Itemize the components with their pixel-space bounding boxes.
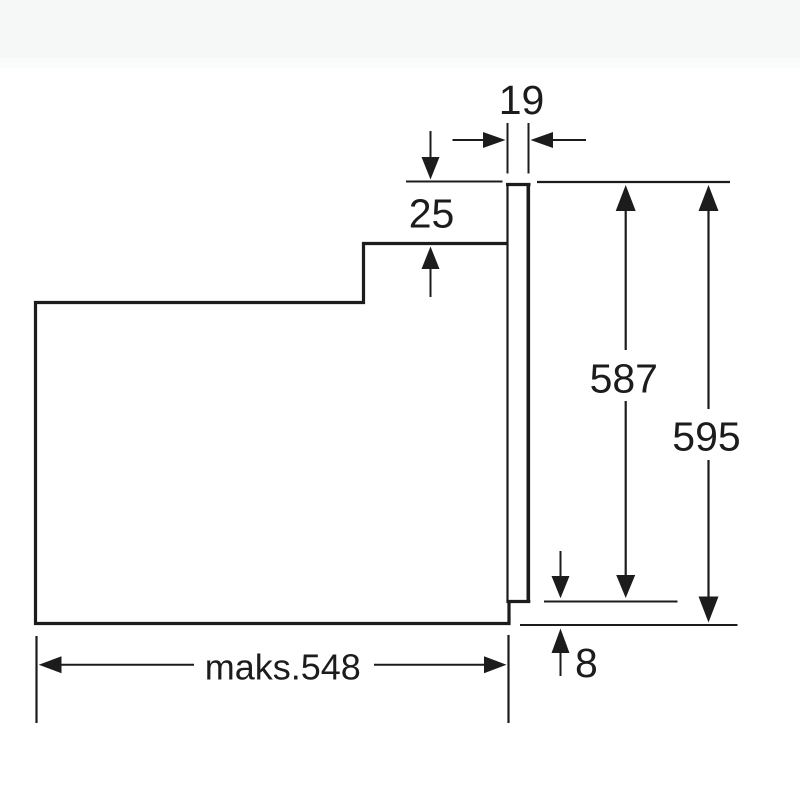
- svg-text:587: 587: [590, 356, 658, 402]
- svg-text:595: 595: [672, 414, 740, 460]
- svg-text:25: 25: [409, 191, 455, 237]
- svg-text:19: 19: [499, 77, 545, 123]
- svg-text:8: 8: [575, 640, 598, 686]
- svg-text:maks.548: maks.548: [205, 647, 361, 688]
